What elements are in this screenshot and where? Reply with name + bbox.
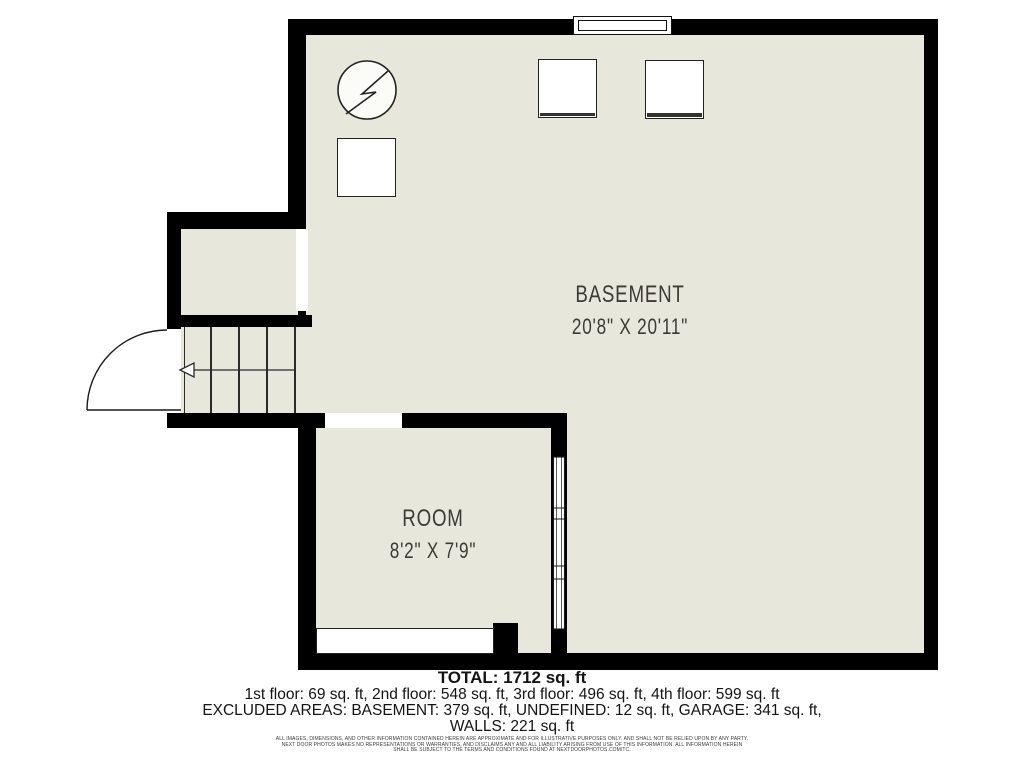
appliance-front-edge: [540, 113, 595, 116]
room-label: ROOM 8'2" X 7'9": [316, 506, 550, 563]
basement-label: BASEMENT 20'8" X 20'11": [513, 282, 747, 339]
room-door-opening: [325, 413, 402, 428]
stairs-direction-arrow-icon: [174, 357, 304, 383]
total-area: TOTAL: 1712 sq. ft: [0, 669, 1024, 687]
area-summary: TOTAL: 1712 sq. ft 1st floor: 69 sq. ft,…: [0, 669, 1024, 735]
room-name: BASEMENT: [513, 282, 747, 308]
excluded-areas: EXCLUDED AREAS: BASEMENT: 379 sq. ft, UN…: [0, 703, 1024, 719]
appliance-front-edge: [647, 113, 702, 117]
floor-areas: 1st floor: 69 sq. ft, 2nd floor: 548 sq.…: [0, 687, 1024, 703]
electric-water-heater-icon: [336, 59, 398, 121]
wall-under-closet: [181, 315, 312, 327]
appliance-square: [337, 138, 396, 197]
built-in-counter: [316, 628, 494, 654]
disclaimer: ALL IMAGES, DIMENSIONS, AND OTHER INFORM…: [0, 737, 1024, 754]
entry-door-swing-icon: [85, 326, 185, 418]
room-name: ROOM: [316, 506, 550, 532]
appliance-square: [645, 60, 704, 119]
appliance-square: [538, 59, 597, 118]
floor-plan-page: BASEMENT 20'8" X 20'11" ROOM 8'2" X 7'9"…: [0, 0, 1024, 768]
room-dimensions: 20'8" X 20'11": [513, 315, 747, 339]
walls-area: WALLS: 221 sq. ft: [0, 719, 1024, 735]
room-wall-stub: [493, 623, 518, 655]
closet-floor: [181, 229, 298, 315]
disclaimer-line: SHALL BE SUBJECT TO THE TERMS AND CONDIT…: [0, 748, 1024, 754]
room-left-wall: [298, 413, 316, 670]
window: [573, 16, 672, 35]
closet-door-opening: [296, 229, 308, 311]
room-window-strip: [551, 450, 567, 636]
room-dimensions: 8'2" X 7'9": [316, 539, 550, 563]
window-frame: [578, 20, 667, 31]
exterior-notch: [288, 428, 298, 670]
